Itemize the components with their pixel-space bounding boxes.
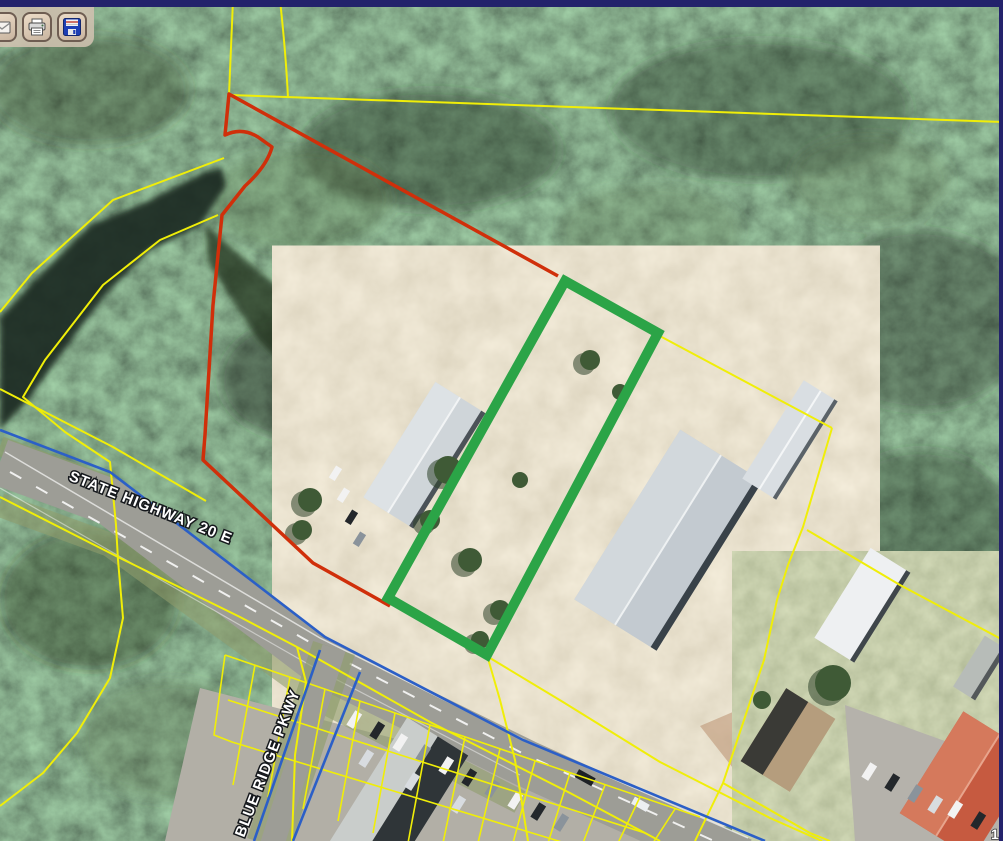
gis-map-window: STATE HIGHWAY 20 E BLUE RIDGE PKWY 1 — [0, 0, 1003, 841]
window-top-edge — [0, 0, 1003, 7]
scale-number: 1 — [991, 826, 999, 841]
mail-button[interactable] — [0, 12, 17, 42]
save-icon — [62, 17, 82, 37]
printer-icon — [27, 17, 47, 37]
aerial-map[interactable]: STATE HIGHWAY 20 E BLUE RIDGE PKWY 1 — [0, 0, 1003, 841]
window-right-edge — [999, 0, 1003, 841]
print-button[interactable] — [22, 12, 52, 42]
mail-icon — [0, 18, 12, 36]
save-button[interactable] — [57, 12, 87, 42]
toolbar — [0, 7, 94, 47]
